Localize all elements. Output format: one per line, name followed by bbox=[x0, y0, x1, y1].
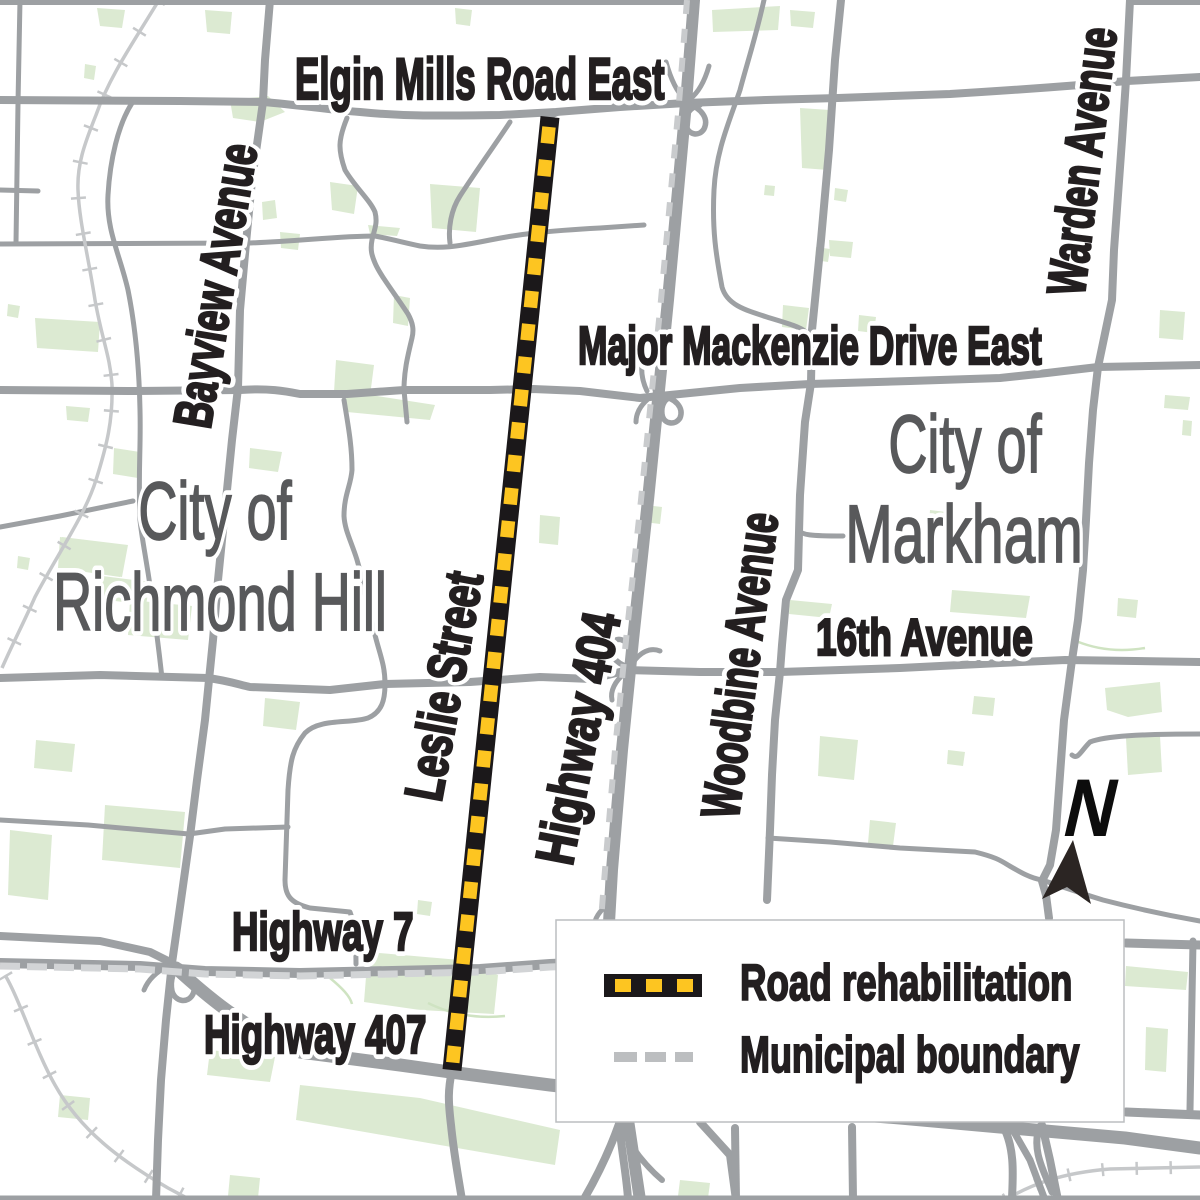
svg-text:16th Avenue: 16th Avenue bbox=[816, 608, 1033, 667]
svg-text:Municipal boundary: Municipal boundary bbox=[740, 1027, 1080, 1084]
svg-text:City of: City of bbox=[138, 465, 292, 557]
svg-text:Richmond Hill: Richmond Hill bbox=[53, 556, 387, 648]
svg-text:Highway 7: Highway 7 bbox=[232, 901, 414, 962]
svg-text:Markham: Markham bbox=[845, 488, 1083, 580]
svg-text:Highway 407: Highway 407 bbox=[204, 1004, 426, 1065]
svg-text:Major Mackenzie Drive East: Major Mackenzie Drive East bbox=[578, 315, 1042, 375]
svg-text:Road rehabilitation: Road rehabilitation bbox=[740, 955, 1072, 1011]
svg-text:City of: City of bbox=[888, 398, 1042, 490]
svg-text:Elgin Mills Road East: Elgin Mills Road East bbox=[295, 48, 664, 113]
